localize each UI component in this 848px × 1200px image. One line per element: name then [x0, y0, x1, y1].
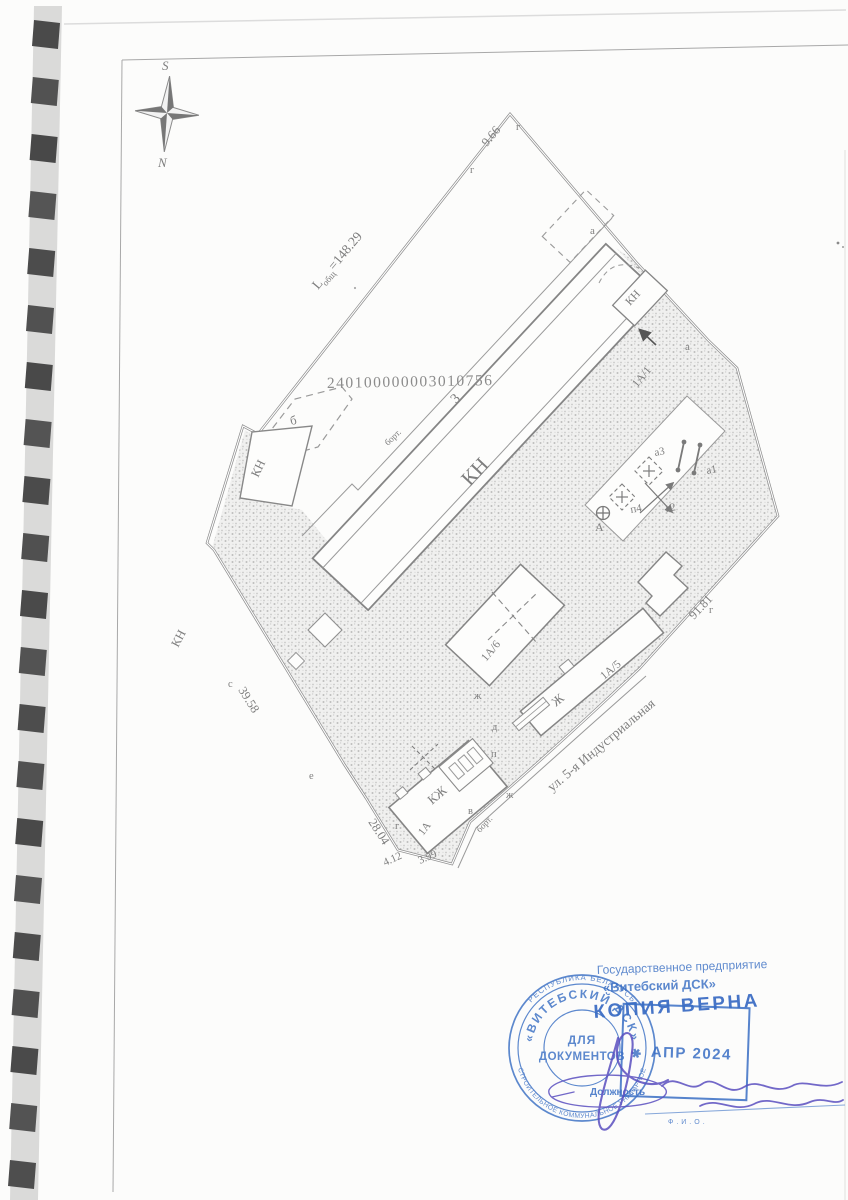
- point-zh-2: ж: [505, 790, 514, 801]
- date-stamp-value: АПР 2024: [651, 1044, 733, 1064]
- round-stamp-center1: ДЛЯ: [568, 1033, 597, 1047]
- label-sym-A: А: [595, 520, 604, 534]
- compass-south-label: S: [162, 58, 169, 73]
- point-p: п: [491, 749, 497, 760]
- point-zh-1: ж: [473, 691, 482, 702]
- point-a-strip: а: [685, 341, 690, 353]
- label-sym-a2: а2: [664, 501, 676, 515]
- scan-speck-1: [837, 242, 840, 245]
- point-g-bottom: г: [395, 821, 400, 832]
- scan-speck-2: [842, 246, 844, 248]
- scan-speck-3: [354, 287, 356, 289]
- fio-label: Ф.И.О.: [668, 1119, 708, 1126]
- point-s: с: [228, 679, 233, 690]
- point-d: д: [492, 722, 498, 733]
- point-g-upper: г: [470, 165, 475, 176]
- point-g-apex: г: [516, 122, 521, 133]
- scanned-plan-page: S N: [0, 0, 848, 1200]
- symbol-circle-cross: [597, 507, 610, 520]
- point-e: е: [309, 771, 314, 782]
- point-v: в: [468, 806, 473, 817]
- label-sym-a1: а1: [705, 463, 717, 477]
- label-cadastral-number: 240100000003010756: [327, 372, 494, 392]
- point-a-dashed: а: [590, 225, 595, 237]
- point-g-right: г: [709, 605, 714, 616]
- position-label: Должность: [590, 1087, 645, 1098]
- compass-north-label: N: [157, 155, 168, 170]
